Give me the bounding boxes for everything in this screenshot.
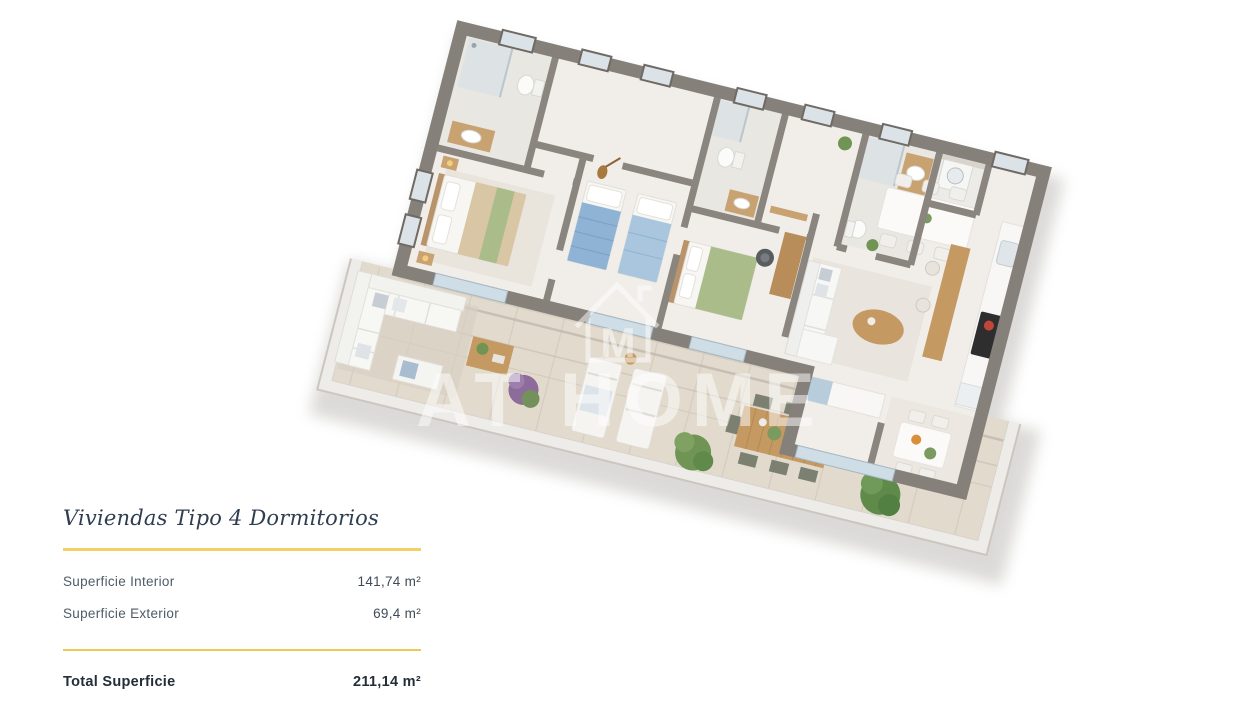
- area-interior-label: Superficie Interior: [63, 574, 175, 589]
- plan-title: Viviendas Tipo 4 Dormitorios: [63, 506, 421, 530]
- accent-divider-bottom: [63, 649, 421, 651]
- area-exterior-value: 69,4 m²: [373, 606, 421, 621]
- area-row-interior: Superficie Interior 141,74 m²: [63, 574, 421, 589]
- area-exterior-label: Superficie Exterior: [63, 606, 179, 621]
- summary-panel: Viviendas Tipo 4 Dormitorios Superficie …: [63, 506, 421, 690]
- total-label: Total Superficie: [63, 674, 176, 690]
- area-interior-value: 141,74 m²: [358, 574, 421, 589]
- watermark-brand-text: AT HOME: [416, 358, 824, 443]
- floorplan-page: { "plan": { "title": "Viviendas Tipo 4 D…: [0, 0, 1240, 720]
- area-row-exterior: Superficie Exterior 69,4 m²: [63, 606, 421, 621]
- plan-projection: [309, 8, 1106, 586]
- total-row: Total Superficie 211,14 m²: [63, 674, 421, 690]
- total-value: 211,14 m²: [353, 674, 421, 690]
- accent-divider-top: [63, 548, 421, 551]
